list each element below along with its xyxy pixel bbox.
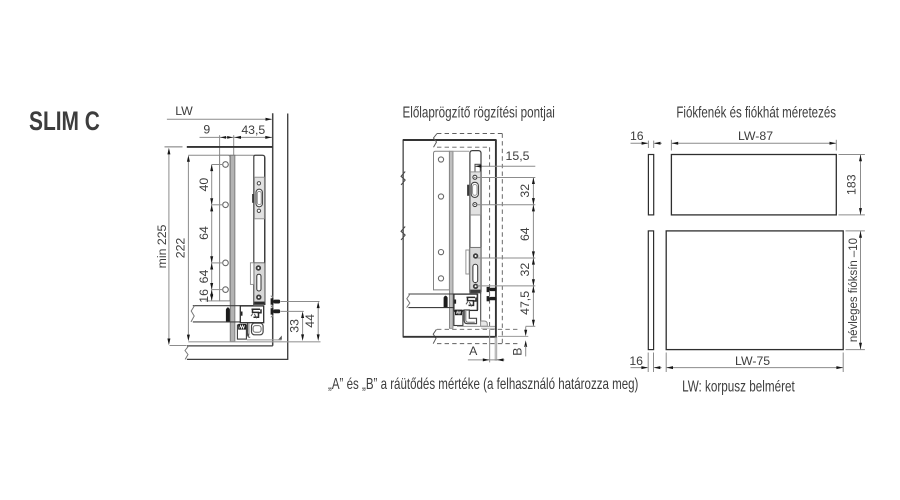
svg-text:A: A (469, 344, 478, 358)
svg-text:64: 64 (518, 227, 532, 241)
svg-text:9: 9 (203, 123, 210, 137)
svg-text:33: 33 (287, 319, 301, 333)
svg-text:16: 16 (629, 354, 643, 368)
svg-text:222: 222 (173, 238, 187, 259)
svg-text:183: 183 (844, 174, 858, 195)
svg-text:LW-87: LW-87 (738, 129, 773, 143)
svg-text:16: 16 (630, 129, 644, 143)
svg-text:LW: LW (175, 104, 193, 118)
svg-text:B: B (511, 348, 525, 356)
svg-text:„A” és „B” a ráütődés mértéke: „A” és „B” a ráütődés mértéke (a felhasz… (328, 375, 638, 392)
svg-text:44: 44 (303, 314, 317, 328)
svg-text:47,5: 47,5 (518, 291, 532, 315)
svg-text:32: 32 (518, 263, 532, 277)
svg-text:15,5: 15,5 (506, 149, 530, 163)
svg-text:64: 64 (197, 226, 211, 240)
svg-text:40: 40 (197, 178, 211, 192)
svg-text:Előlaprögzítő rögzítési pontja: Előlaprögzítő rögzítési pontjai (403, 104, 555, 121)
svg-text:64: 64 (197, 270, 211, 284)
svg-text:16: 16 (197, 289, 211, 303)
svg-text:LW: korpusz belméret: LW: korpusz belméret (682, 378, 795, 395)
svg-text:SLIM C: SLIM C (29, 107, 100, 137)
svg-text:LW-75: LW-75 (735, 354, 770, 368)
svg-text:Fiókfenék és fiókhát méretezés: Fiókfenék és fiókhát méretezés (676, 104, 836, 121)
svg-text:32: 32 (518, 184, 532, 198)
svg-text:min 225: min 225 (155, 224, 169, 268)
svg-text:névleges fióksín –10: névleges fióksín –10 (846, 238, 860, 343)
svg-text:43,5: 43,5 (241, 123, 265, 137)
